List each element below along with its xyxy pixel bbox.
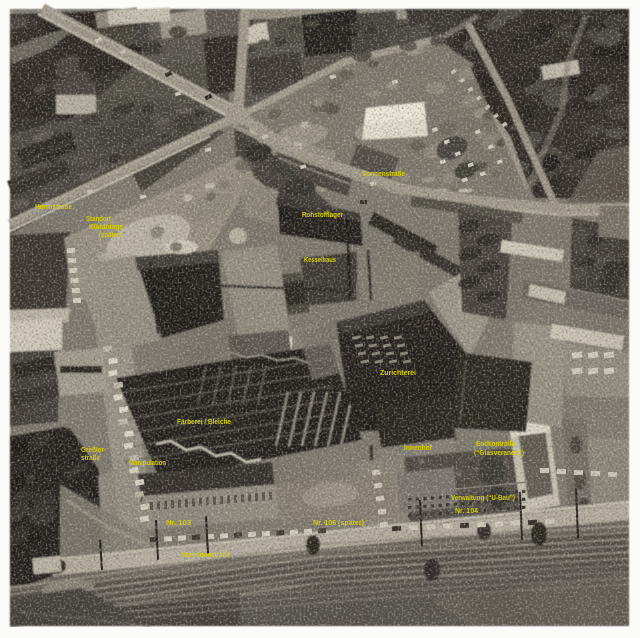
svg-text:Standort: Standort bbox=[86, 216, 112, 223]
svg-text:Manipulation: Manipulation bbox=[129, 460, 166, 467]
svg-text:straße: straße bbox=[81, 455, 100, 462]
svg-text:Verwaltung (“U-Bau”): Verwaltung (“U-Bau”) bbox=[451, 495, 515, 502]
svg-text:Kläranlage: Kläranlage bbox=[89, 224, 123, 231]
svg-text:(später): (später) bbox=[99, 232, 121, 239]
svg-text:Nr. 103: Nr. 103 bbox=[166, 520, 191, 527]
svg-text:Endkontrolle: Endkontrolle bbox=[476, 441, 515, 448]
svg-text:Greßler-: Greßler- bbox=[81, 447, 107, 454]
svg-text:Sonnenstraße: Sonnenstraße bbox=[362, 171, 405, 178]
svg-text:(“Glasveranda”): (“Glasveranda”) bbox=[474, 450, 524, 457]
svg-text:Färberei / Bleiche: Färberei / Bleiche bbox=[177, 419, 231, 426]
svg-text:Kesselhaus: Kesselhaus bbox=[304, 257, 336, 264]
svg-text:Nr. 106 (später): Nr. 106 (später) bbox=[313, 520, 364, 527]
svg-text:Zurichterei: Zurichterei bbox=[380, 370, 416, 377]
svg-text:Rohstofflager: Rohstofflager bbox=[302, 212, 343, 219]
svg-text:Nr. 104: Nr. 104 bbox=[455, 508, 478, 515]
svg-text:Karolinenstraße: Karolinenstraße bbox=[182, 552, 230, 559]
svg-text:Innenhof: Innenhof bbox=[404, 445, 433, 452]
svg-text:Herrnstraße: Herrnstraße bbox=[35, 204, 72, 211]
